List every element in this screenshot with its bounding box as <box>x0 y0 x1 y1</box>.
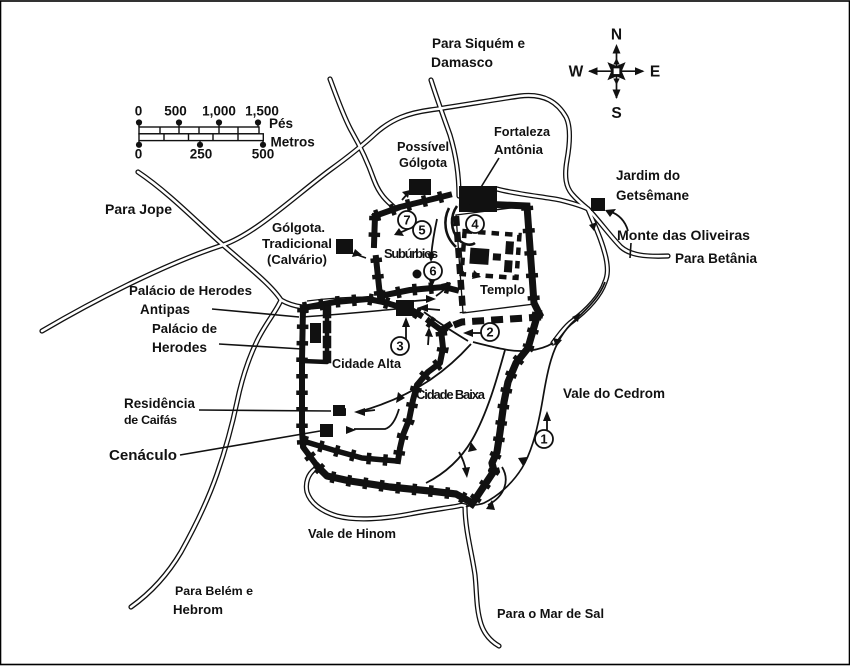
svg-text:Jardim do: Jardim do <box>616 168 680 183</box>
svg-text:Vale de Hinom: Vale de Hinom <box>308 526 396 541</box>
svg-text:Vale do Cedrom: Vale do Cedrom <box>563 386 665 401</box>
svg-text:Fortaleza: Fortaleza <box>494 125 551 139</box>
svg-text:N: N <box>611 27 622 44</box>
svg-text:5: 5 <box>418 223 425 238</box>
svg-text:0: 0 <box>135 147 143 162</box>
svg-text:Gólgota.: Gólgota. <box>272 220 325 235</box>
svg-text:250: 250 <box>190 147 213 162</box>
svg-text:Pés: Pés <box>269 116 293 131</box>
svg-text:E: E <box>650 64 660 81</box>
svg-text:7: 7 <box>403 213 410 228</box>
svg-text:1,000: 1,000 <box>202 104 236 119</box>
svg-text:Para o Mar de Sal: Para o Mar de Sal <box>497 606 604 621</box>
svg-text:Cidade Alta: Cidade Alta <box>332 357 402 371</box>
svg-text:Cidade Baixa: Cidade Baixa <box>416 387 486 402</box>
svg-text:Monte das Oliveiras: Monte das Oliveiras <box>617 227 750 243</box>
svg-text:3: 3 <box>396 339 403 354</box>
svg-text:(Calvário): (Calvário) <box>267 252 327 267</box>
svg-text:Herodes: Herodes <box>152 340 207 355</box>
svg-text:Antônia: Antônia <box>494 142 544 157</box>
svg-text:S: S <box>611 105 621 122</box>
svg-text:Para Belém e: Para Belém e <box>175 584 253 598</box>
svg-text:Residência: Residência <box>124 396 196 411</box>
svg-text:Damasco: Damasco <box>431 54 493 70</box>
svg-text:W: W <box>569 64 584 81</box>
svg-text:Antipas: Antipas <box>140 302 190 317</box>
svg-text:500: 500 <box>164 104 187 119</box>
svg-text:Getsêmane: Getsêmane <box>616 188 689 203</box>
svg-text:Possível: Possível <box>397 139 449 154</box>
svg-text:4: 4 <box>471 217 479 232</box>
svg-text:Gólgota: Gólgota <box>399 156 448 170</box>
svg-text:Para Siquém e: Para Siquém e <box>432 36 525 51</box>
svg-text:1: 1 <box>540 432 547 447</box>
svg-text:0: 0 <box>135 104 143 119</box>
svg-text:500: 500 <box>252 147 275 162</box>
svg-text:Palácio de Herodes: Palácio de Herodes <box>129 283 252 298</box>
svg-text:Palácio de: Palácio de <box>152 321 217 336</box>
svg-text:Hebrom: Hebrom <box>173 602 223 617</box>
svg-text:Metros: Metros <box>271 135 315 150</box>
svg-text:de Caifás: de Caifás <box>124 413 177 427</box>
svg-text:Tradicional: Tradicional <box>262 236 332 251</box>
svg-text:2: 2 <box>486 325 493 340</box>
svg-text:Templo: Templo <box>480 282 525 297</box>
svg-text:6: 6 <box>429 264 436 279</box>
svg-text:Para Betânia: Para Betânia <box>675 251 757 266</box>
svg-text:Cenáculo: Cenáculo <box>109 447 177 464</box>
svg-text:Para Jope: Para Jope <box>105 201 172 217</box>
svg-text:Subúrbios: Subúrbios <box>384 246 438 261</box>
